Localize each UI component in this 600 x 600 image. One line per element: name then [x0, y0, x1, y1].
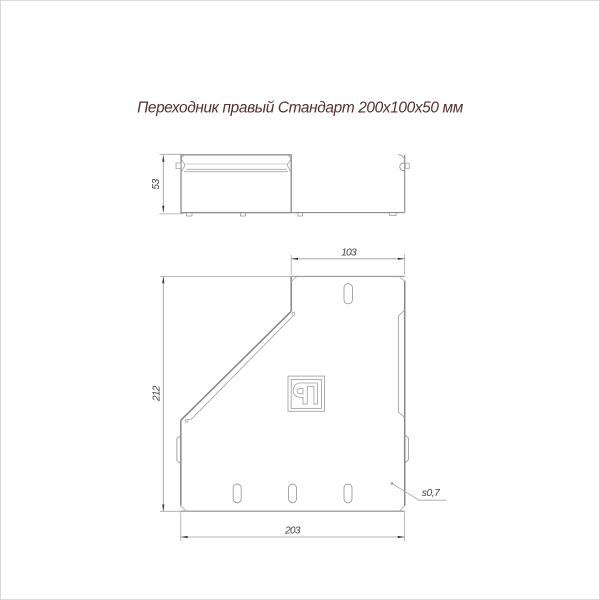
- svg-text:s0,7: s0,7: [422, 488, 441, 499]
- svg-text:212: 212: [151, 385, 162, 402]
- svg-text:103: 103: [341, 248, 357, 259]
- svg-text:203: 203: [284, 525, 301, 536]
- svg-text:Переходник правый Стандарт 200: Переходник правый Стандарт 200х100х50 мм: [137, 99, 464, 116]
- svg-text:53: 53: [151, 178, 162, 189]
